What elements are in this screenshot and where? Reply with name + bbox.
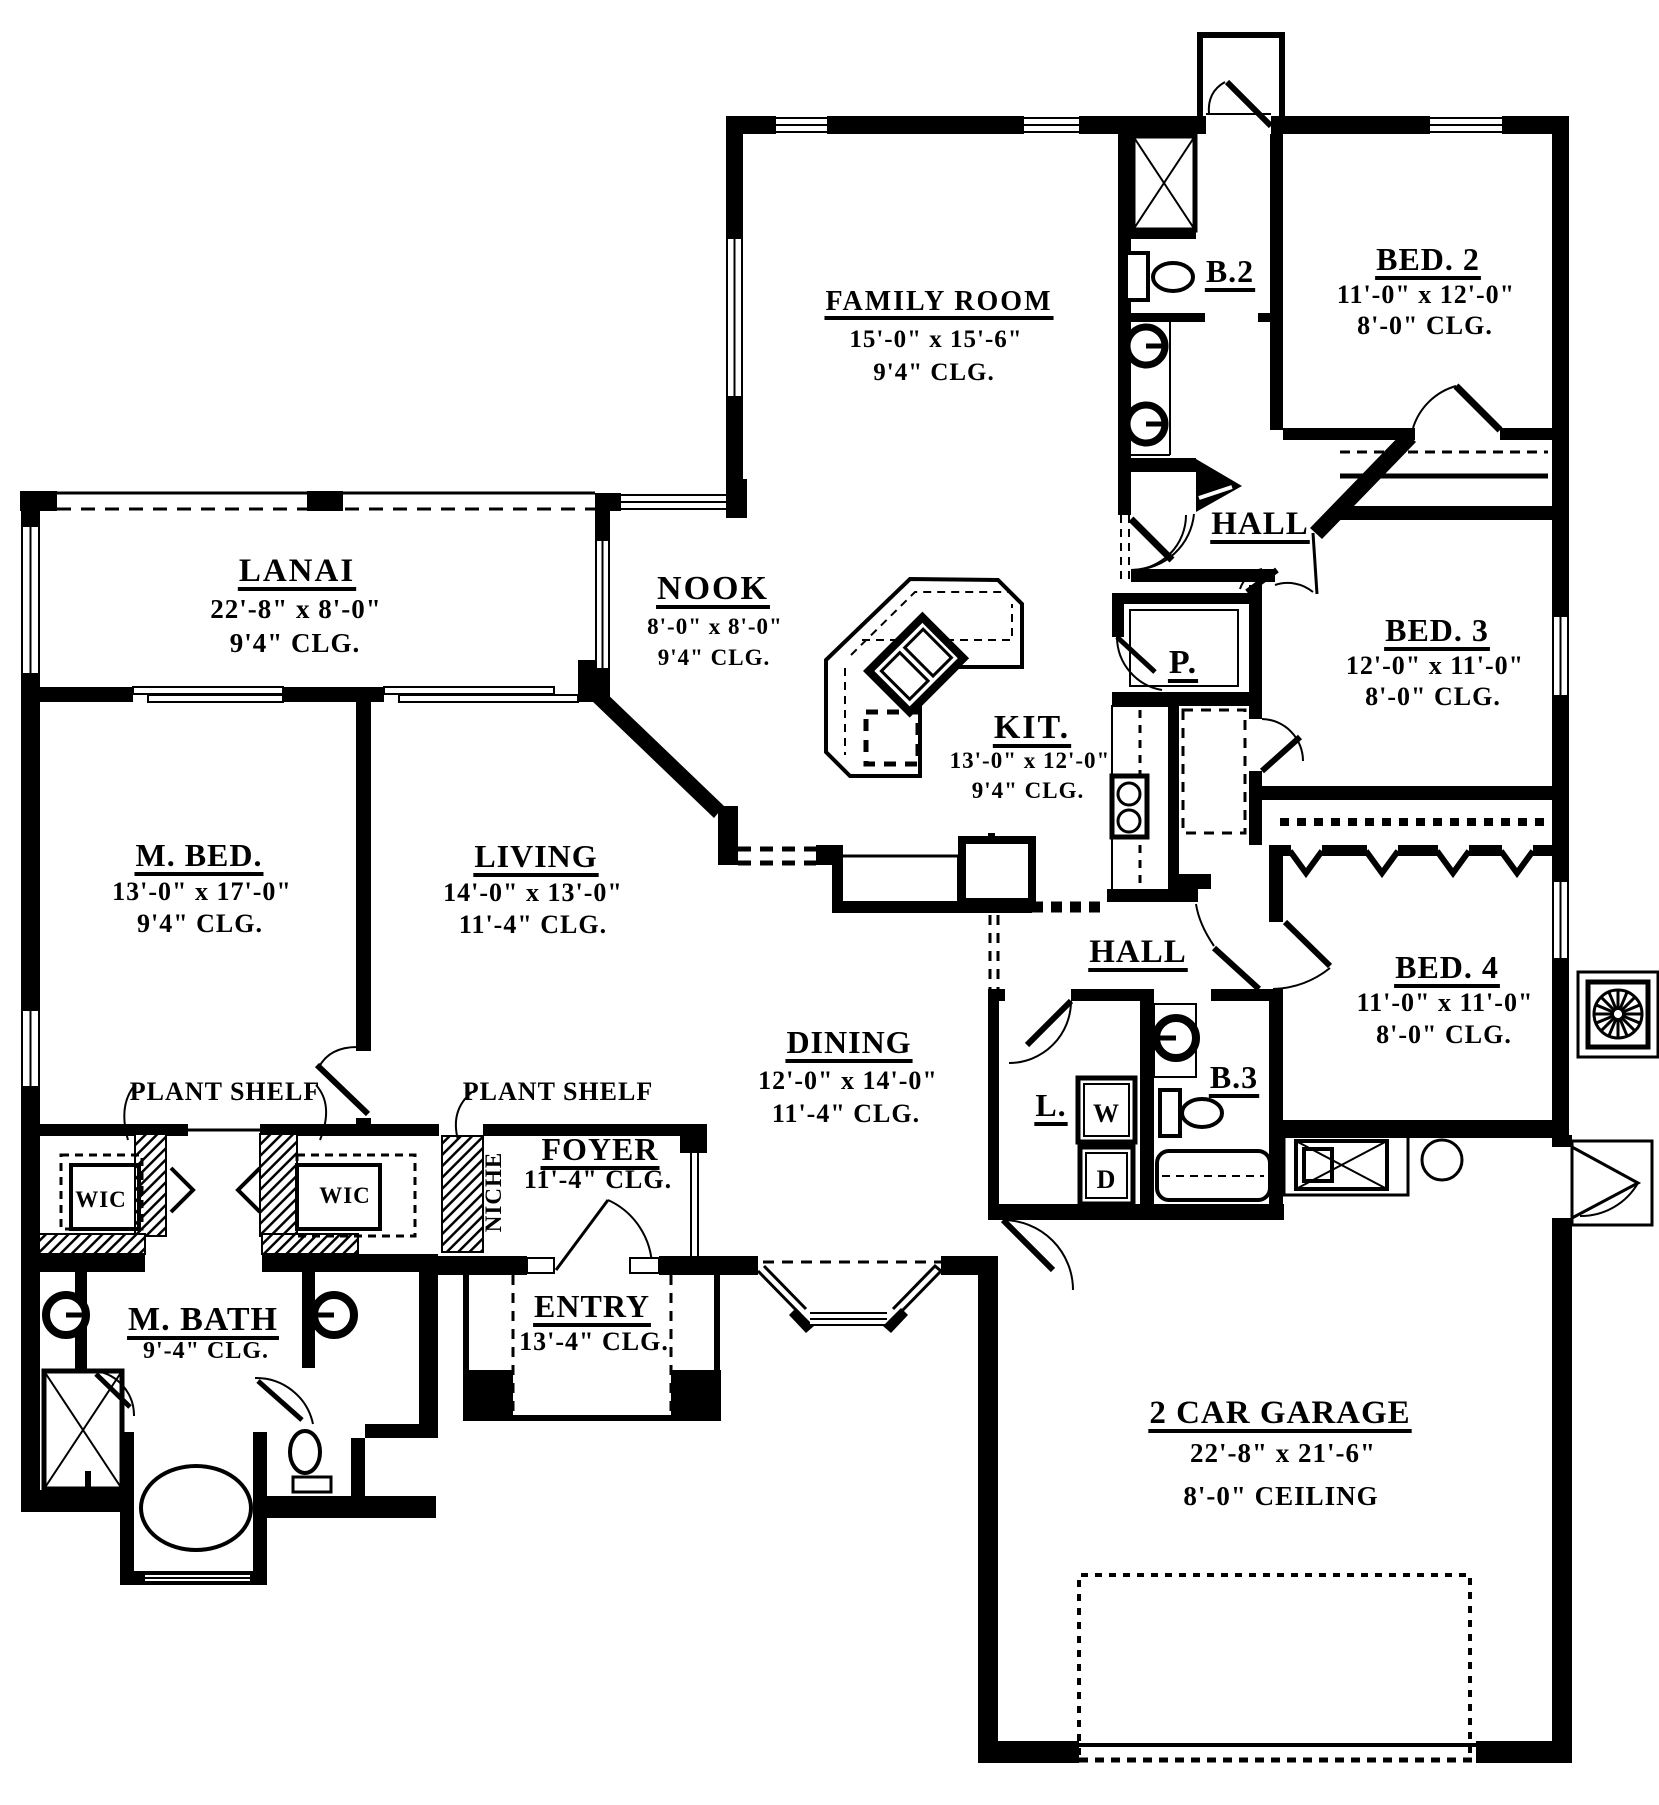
svg-text:ENTRY: ENTRY [534,1288,650,1324]
svg-text:WIC: WIC [319,1183,371,1208]
svg-text:B.3: B.3 [1210,1059,1258,1095]
svg-text:22'-8" x 8'-0": 22'-8" x 8'-0" [210,594,381,624]
svg-text:9'4" CLG.: 9'4" CLG. [873,359,995,386]
svg-text:FAMILY ROOM: FAMILY ROOM [825,286,1052,317]
svg-text:11'-0" x 11'-0": 11'-0" x 11'-0" [1357,988,1534,1017]
svg-text:NICHE: NICHE [481,1152,506,1232]
svg-text:DINING: DINING [786,1024,911,1060]
svg-text:8'-0" CLG.: 8'-0" CLG. [1376,1020,1512,1049]
svg-text:13'-4" CLG.: 13'-4" CLG. [519,1327,669,1356]
svg-text:8'-0" CLG.: 8'-0" CLG. [1357,311,1493,340]
svg-text:9'4" CLG.: 9'4" CLG. [972,778,1085,803]
svg-text:BED. 3: BED. 3 [1385,612,1489,648]
svg-text:13'-0" x 12'-0": 13'-0" x 12'-0" [950,748,1111,773]
svg-text:13'-0" x 17'-0": 13'-0" x 17'-0" [112,877,292,906]
svg-text:BED. 2: BED. 2 [1376,241,1480,277]
svg-text:11'-0" x 12'-0": 11'-0" x 12'-0" [1337,280,1515,309]
svg-text:L.: L. [1035,1087,1066,1123]
svg-text:D: D [1097,1165,1116,1194]
svg-text:9'4" CLG.: 9'4" CLG. [137,909,263,938]
svg-text:B.2: B.2 [1206,253,1254,289]
svg-text:M. BATH: M. BATH [128,1301,278,1338]
svg-text:8'-0" CEILING: 8'-0" CEILING [1183,1481,1378,1511]
svg-text:W: W [1093,1099,1119,1128]
svg-text:FOYER: FOYER [542,1131,659,1167]
svg-text:2 CAR GARAGE: 2 CAR GARAGE [1149,1395,1410,1431]
svg-text:BED. 4: BED. 4 [1395,949,1499,985]
svg-text:11'-4" CLG.: 11'-4" CLG. [459,910,607,939]
svg-text:HALL: HALL [1089,934,1187,970]
svg-text:P.: P. [1169,644,1197,681]
svg-text:8'-0" CLG.: 8'-0" CLG. [1365,682,1501,711]
svg-text:14'-0" x 13'-0": 14'-0" x 13'-0" [443,878,623,907]
svg-text:12'-0" x 11'-0": 12'-0" x 11'-0" [1346,651,1524,680]
svg-text:LIVING: LIVING [474,838,597,874]
svg-text:HALL: HALL [1211,506,1309,542]
svg-text:22'-8" x 21'-6": 22'-8" x 21'-6" [1190,1438,1376,1468]
svg-text:9'4" CLG.: 9'4" CLG. [230,628,361,658]
svg-text:11'-4" CLG.: 11'-4" CLG. [772,1099,920,1128]
svg-text:LANAI: LANAI [239,553,355,589]
svg-text:KIT.: KIT. [994,709,1070,746]
svg-text:11'-4" CLG.: 11'-4" CLG. [524,1165,672,1194]
svg-text:WIC: WIC [75,1187,127,1212]
svg-text:8'-0" x 8'-0": 8'-0" x 8'-0" [647,614,783,639]
svg-text:NOOK: NOOK [657,570,769,607]
svg-text:PLANT SHELF: PLANT SHELF [130,1077,320,1106]
svg-text:PLANT SHELF: PLANT SHELF [463,1077,653,1106]
svg-text:15'-0" x 15'-6": 15'-0" x 15'-6" [849,326,1022,353]
svg-text:12'-0" x 14'-0": 12'-0" x 14'-0" [758,1066,938,1095]
svg-text:9'4" CLG.: 9'4" CLG. [658,645,771,670]
svg-text:M. BED.: M. BED. [136,837,263,873]
svg-text:9'-4" CLG.: 9'-4" CLG. [143,1338,269,1364]
